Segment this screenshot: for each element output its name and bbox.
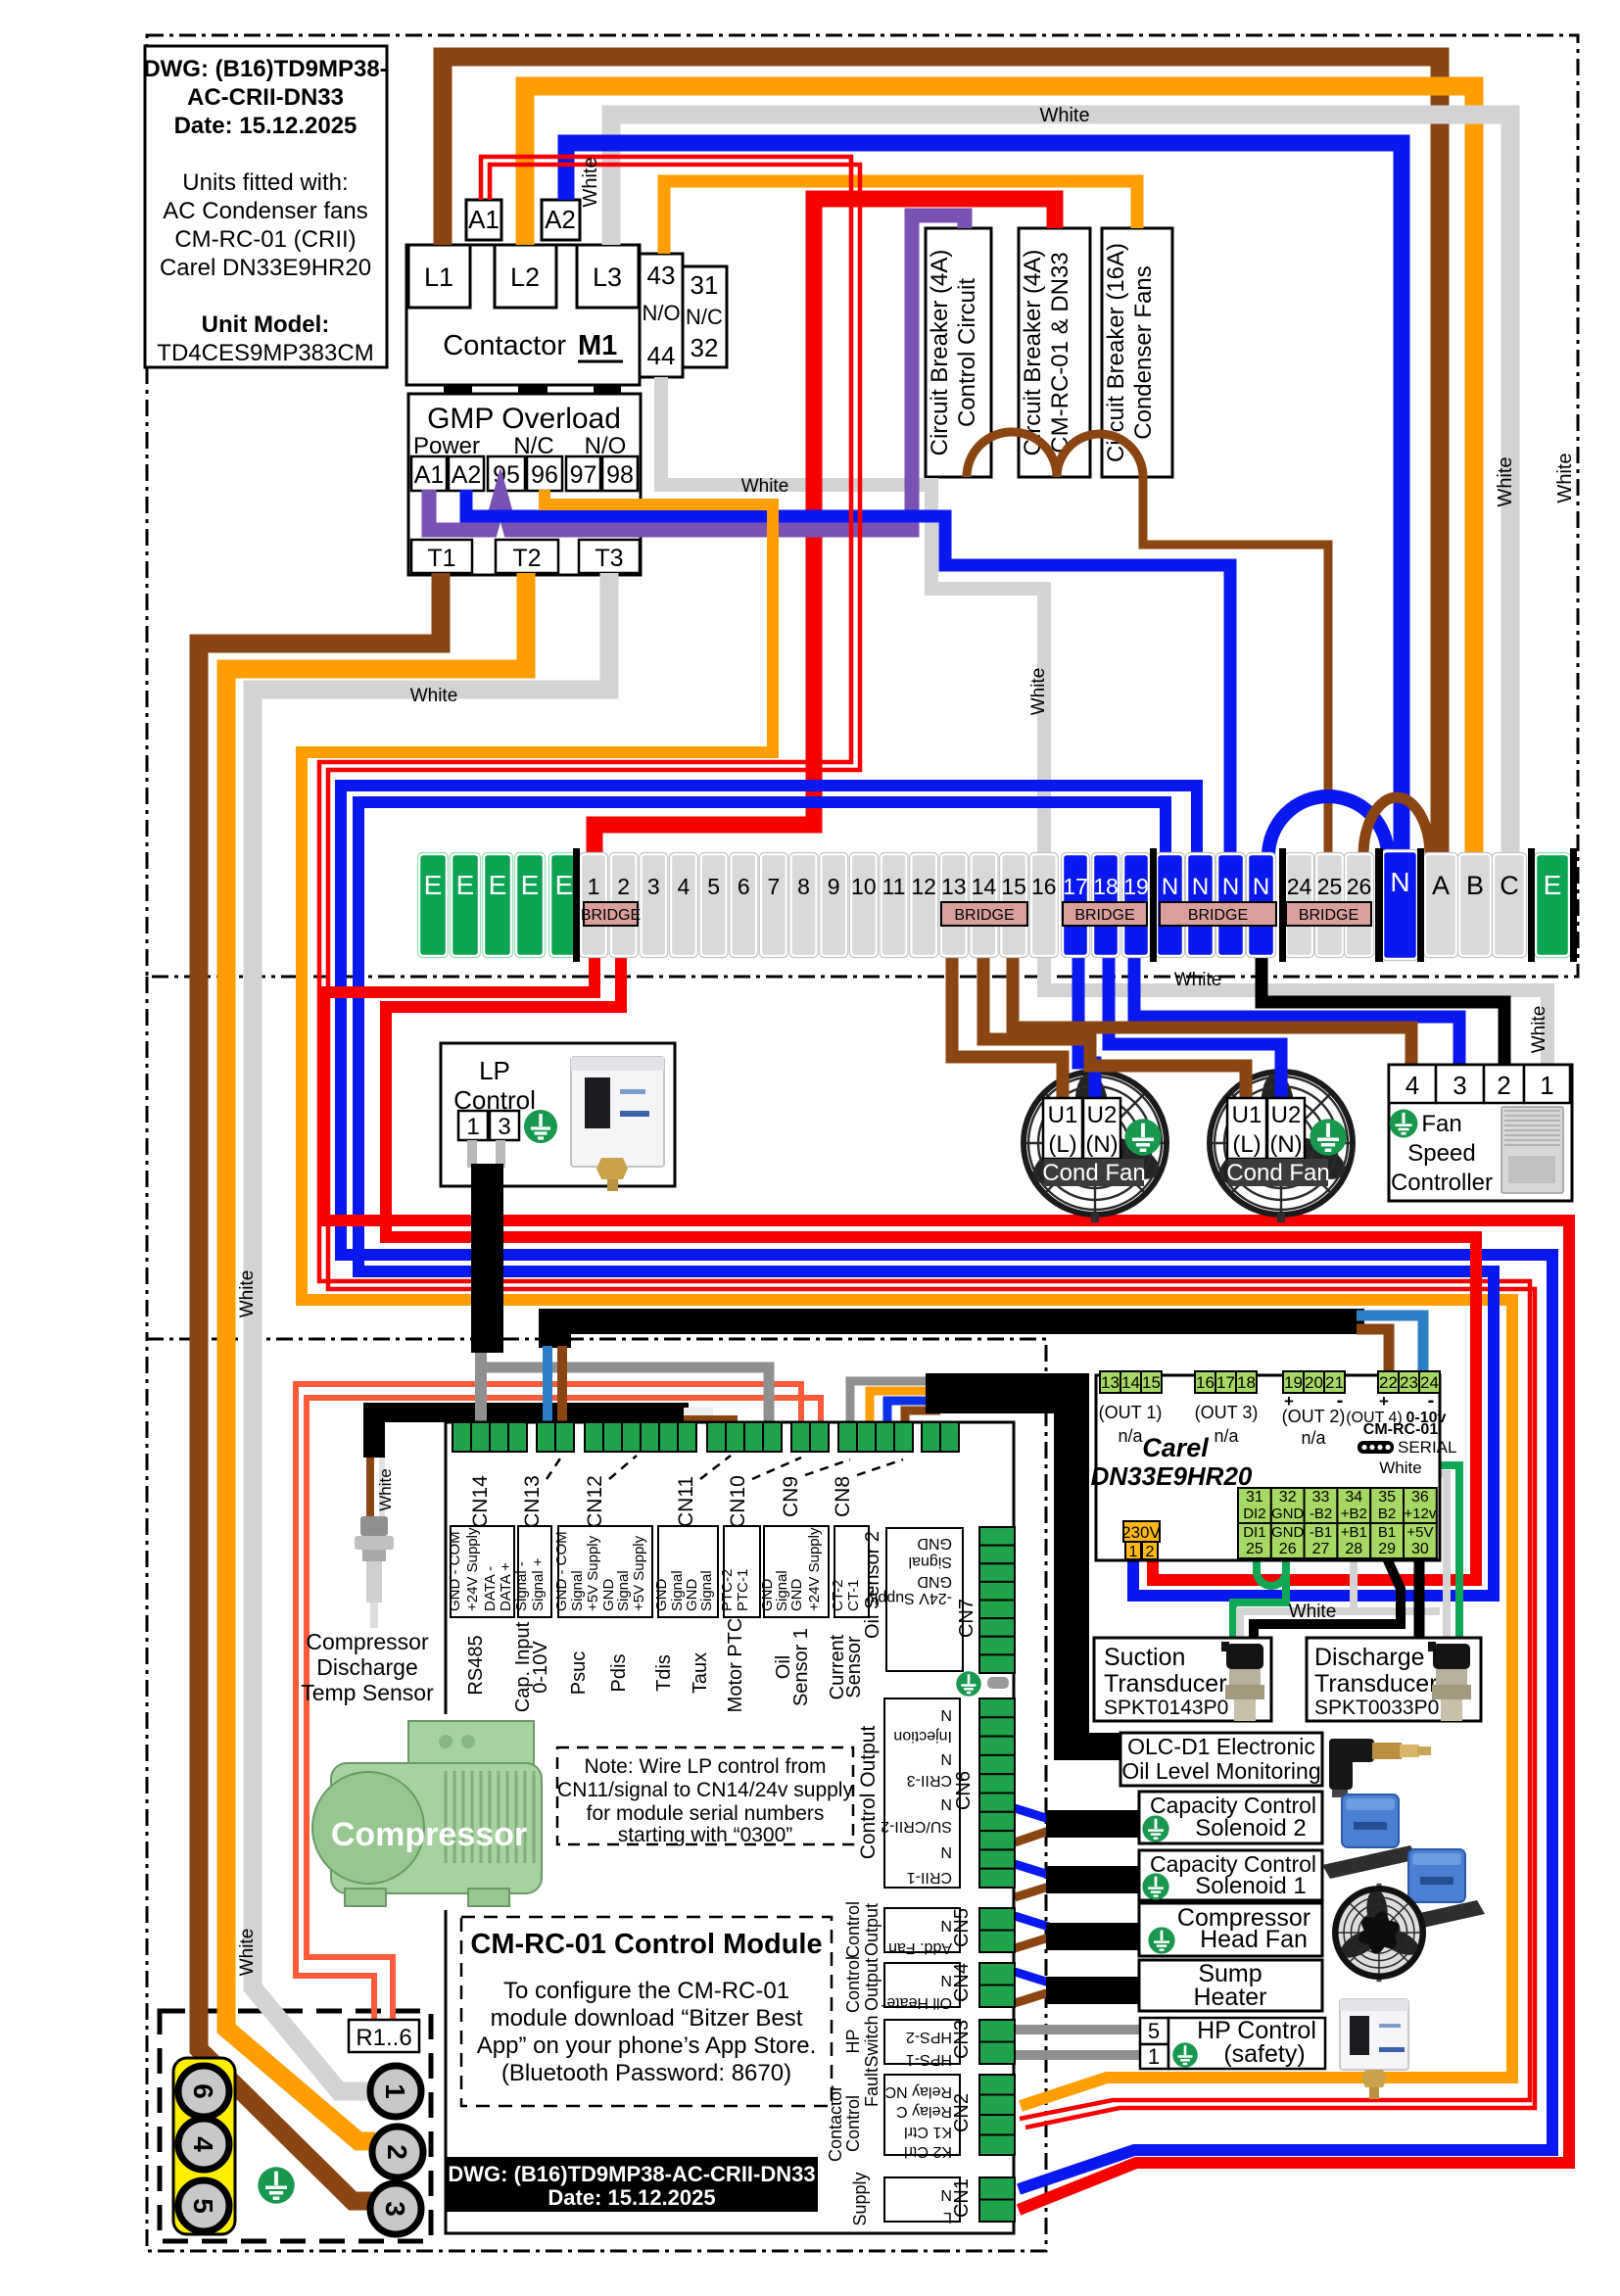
svg-text:DATA +: DATA + bbox=[498, 1562, 514, 1611]
svg-text:2: 2 bbox=[1146, 1544, 1155, 1560]
svg-text:starting with “0300”: starting with “0300” bbox=[618, 1824, 793, 1846]
svg-text:1: 1 bbox=[466, 1114, 479, 1140]
svg-text:K2 Ctrl: K2 Ctrl bbox=[904, 2143, 952, 2160]
svg-text:U1: U1 bbox=[1232, 1102, 1263, 1128]
svg-text:+24V Supply: +24V Supply bbox=[806, 1527, 823, 1611]
svg-text:3: 3 bbox=[498, 1114, 510, 1140]
svg-text:B2: B2 bbox=[1378, 1506, 1396, 1522]
svg-text:96: 96 bbox=[531, 461, 558, 489]
svg-text:E: E bbox=[489, 870, 507, 900]
svg-text:Signal: Signal bbox=[698, 1570, 715, 1611]
svg-text:Signal: Signal bbox=[615, 1570, 632, 1611]
svg-text:Injection: Injection bbox=[893, 1728, 952, 1745]
svg-text:DI2: DI2 bbox=[1243, 1506, 1265, 1522]
svg-text:-B1: -B1 bbox=[1310, 1524, 1332, 1541]
svg-text:1: 1 bbox=[380, 2083, 410, 2099]
svg-text:(safety): (safety) bbox=[1223, 2040, 1305, 2068]
svg-text:Date: 15.12.2025: Date: 15.12.2025 bbox=[174, 113, 357, 139]
svg-text:17: 17 bbox=[1063, 874, 1088, 899]
svg-text:Discharge: Discharge bbox=[1314, 1644, 1425, 1671]
svg-text:Oil Level Monitoring: Oil Level Monitoring bbox=[1121, 1758, 1320, 1784]
svg-text:TD4CES9MP383CM: TD4CES9MP383CM bbox=[157, 340, 373, 366]
svg-text:3: 3 bbox=[647, 874, 660, 899]
svg-text:White: White bbox=[376, 1468, 395, 1510]
svg-text:(Bluetooth Password: 8670): (Bluetooth Password: 8670) bbox=[501, 2060, 791, 2086]
svg-text:CN3: CN3 bbox=[951, 2020, 973, 2059]
svg-text:Switch: Switch bbox=[862, 2015, 881, 2067]
svg-text:(OUT 3): (OUT 3) bbox=[1195, 1403, 1259, 1422]
svg-text:SPKT0033P0: SPKT0033P0 bbox=[1314, 1697, 1439, 1719]
svg-text:HP: HP bbox=[843, 2029, 863, 2053]
svg-text:32: 32 bbox=[691, 333, 719, 362]
svg-text:Fault: Fault bbox=[862, 2068, 881, 2107]
svg-text:Taux: Taux bbox=[690, 1652, 711, 1694]
svg-text:13: 13 bbox=[1101, 1373, 1120, 1392]
svg-text:CT-1: CT-1 bbox=[845, 1579, 862, 1611]
svg-text:Compressor: Compressor bbox=[331, 1816, 527, 1853]
svg-text:6: 6 bbox=[738, 874, 750, 899]
svg-text:R1..6: R1..6 bbox=[356, 2025, 411, 2051]
svg-text:Relay NC: Relay NC bbox=[885, 2083, 952, 2100]
svg-text:HPS-2: HPS-2 bbox=[906, 2029, 952, 2045]
svg-text:Compressor: Compressor bbox=[306, 1629, 429, 1654]
svg-text:AC Condenser fans: AC Condenser fans bbox=[163, 198, 367, 224]
svg-text:CM-RC-01 (CRII): CM-RC-01 (CRII) bbox=[174, 226, 356, 253]
svg-text:15: 15 bbox=[1142, 1373, 1161, 1392]
svg-text:97: 97 bbox=[570, 461, 597, 489]
svg-text:White: White bbox=[1529, 1006, 1549, 1054]
svg-text:M1: M1 bbox=[578, 330, 617, 361]
svg-text:Units fitted with:: Units fitted with: bbox=[182, 169, 348, 196]
svg-text:E: E bbox=[521, 870, 540, 900]
svg-text:Oil Heater: Oil Heater bbox=[881, 1994, 952, 2011]
svg-text:6: 6 bbox=[188, 2083, 218, 2099]
svg-text:Signal: Signal bbox=[569, 1570, 586, 1611]
svg-text:C: C bbox=[1500, 871, 1519, 900]
svg-text:1: 1 bbox=[1129, 1544, 1138, 1560]
svg-text:CN2: CN2 bbox=[951, 2093, 973, 2132]
svg-text:14: 14 bbox=[972, 874, 997, 899]
svg-text:Sensor 1: Sensor 1 bbox=[790, 1628, 812, 1706]
svg-text:25: 25 bbox=[1246, 1541, 1263, 1557]
svg-text:(OUT 1): (OUT 1) bbox=[1099, 1403, 1163, 1422]
svg-text:CN7: CN7 bbox=[956, 1599, 977, 1638]
svg-text:CM-RC-01 Control Module: CM-RC-01 Control Module bbox=[470, 1929, 822, 1960]
svg-text:White: White bbox=[741, 476, 789, 497]
svg-text:N: N bbox=[940, 1843, 952, 1860]
svg-text:Circuit Breaker (4A): Circuit Breaker (4A) bbox=[927, 250, 953, 456]
svg-text:17: 17 bbox=[1216, 1373, 1235, 1392]
svg-text:+5V: +5V bbox=[1406, 1524, 1433, 1541]
svg-text:25: 25 bbox=[1317, 874, 1343, 899]
svg-text:7: 7 bbox=[768, 874, 781, 899]
svg-text:43: 43 bbox=[647, 261, 676, 290]
svg-text:Circuit Breaker (4A): Circuit Breaker (4A) bbox=[1020, 250, 1046, 456]
svg-text:HPS-1: HPS-1 bbox=[906, 2051, 952, 2068]
svg-text:A2: A2 bbox=[545, 205, 576, 234]
svg-text:N: N bbox=[940, 1750, 952, 1767]
svg-text:Unit Model:: Unit Model: bbox=[202, 311, 330, 338]
svg-text:(N): (N) bbox=[1269, 1131, 1302, 1158]
svg-text:Suction: Suction bbox=[1104, 1644, 1185, 1671]
svg-text:BRIDGE: BRIDGE bbox=[1299, 907, 1358, 924]
svg-text:Head Fan: Head Fan bbox=[1200, 1926, 1308, 1953]
svg-text:BRIDGE: BRIDGE bbox=[1074, 907, 1134, 924]
svg-text:98: 98 bbox=[606, 461, 634, 489]
svg-text:33: 33 bbox=[1312, 1489, 1330, 1506]
svg-text:CN12: CN12 bbox=[584, 1475, 606, 1528]
svg-text:Sensor: Sensor bbox=[843, 1636, 865, 1698]
svg-text:Cond Fan: Cond Fan bbox=[1042, 1160, 1145, 1186]
svg-text:Control: Control bbox=[843, 1901, 863, 1958]
svg-text:26: 26 bbox=[1347, 874, 1372, 899]
svg-text:White: White bbox=[580, 157, 601, 207]
svg-text:+5V Supply: +5V Supply bbox=[585, 1535, 601, 1611]
svg-text:1: 1 bbox=[1540, 1071, 1553, 1100]
svg-text:E: E bbox=[424, 870, 443, 900]
svg-text:18: 18 bbox=[1237, 1373, 1256, 1392]
svg-text:Output: Output bbox=[862, 1958, 881, 2011]
svg-text:+B1: +B1 bbox=[1341, 1524, 1367, 1541]
svg-text:CN8: CN8 bbox=[832, 1476, 854, 1517]
svg-text:+B2: +B2 bbox=[1341, 1506, 1367, 1522]
svg-text:Pdis: Pdis bbox=[608, 1654, 630, 1693]
svg-text:Carel: Carel bbox=[1142, 1433, 1209, 1462]
svg-text:OLC-D1 Electronic: OLC-D1 Electronic bbox=[1127, 1734, 1315, 1759]
svg-text:CT-2: CT-2 bbox=[830, 1579, 846, 1611]
svg-text:RS485: RS485 bbox=[465, 1635, 487, 1695]
svg-text:31: 31 bbox=[691, 270, 719, 300]
svg-text:Discharge: Discharge bbox=[316, 1654, 418, 1680]
svg-text:-: - bbox=[1428, 1390, 1435, 1411]
svg-text:(N): (N) bbox=[1085, 1131, 1118, 1158]
svg-text:32: 32 bbox=[1279, 1489, 1297, 1506]
svg-text:Control: Control bbox=[843, 2095, 863, 2152]
svg-text:BRIDGE: BRIDGE bbox=[954, 907, 1014, 924]
svg-text:CN13: CN13 bbox=[521, 1475, 544, 1528]
svg-text:N: N bbox=[1222, 874, 1239, 900]
svg-text:GND: GND bbox=[788, 1579, 805, 1612]
svg-text:for module serial numbers: for module serial numbers bbox=[587, 1802, 825, 1825]
svg-text:10: 10 bbox=[851, 874, 877, 899]
svg-text:CN1: CN1 bbox=[951, 2178, 973, 2218]
svg-text:Signal +: Signal + bbox=[530, 1557, 547, 1611]
svg-text:4: 4 bbox=[188, 2136, 218, 2152]
svg-text:GND - COM: GND - COM bbox=[447, 1531, 463, 1611]
svg-text:A1: A1 bbox=[468, 205, 500, 234]
svg-text:U2: U2 bbox=[1271, 1102, 1302, 1128]
svg-text:T3: T3 bbox=[595, 545, 623, 572]
svg-text:26: 26 bbox=[1279, 1541, 1297, 1557]
svg-text:BRIDGE: BRIDGE bbox=[1188, 907, 1248, 924]
svg-text:N/C: N/C bbox=[686, 305, 723, 329]
svg-text:Control: Control bbox=[843, 1956, 863, 2013]
svg-text:N: N bbox=[1253, 874, 1269, 900]
svg-text:PTC-2: PTC-2 bbox=[719, 1569, 736, 1611]
svg-text:Heater: Heater bbox=[1193, 1984, 1266, 2011]
svg-text:Control Output: Control Output bbox=[857, 1726, 880, 1860]
svg-text:DWG: (B16)TD9MP38-AC-CRII-DN33: DWG: (B16)TD9MP38-AC-CRII-DN33 bbox=[448, 2162, 815, 2186]
svg-text:18: 18 bbox=[1093, 874, 1119, 899]
svg-text:n/a: n/a bbox=[1118, 1426, 1143, 1446]
svg-text:White: White bbox=[1039, 105, 1089, 126]
svg-text:-24V Supply: -24V Supply bbox=[867, 1590, 952, 1606]
svg-text:n/a: n/a bbox=[1214, 1426, 1239, 1446]
svg-text:(OUT 2): (OUT 2) bbox=[1282, 1407, 1346, 1426]
svg-text:DWG: (B16)TD9MP38-: DWG: (B16)TD9MP38- bbox=[143, 56, 387, 82]
svg-text:19: 19 bbox=[1284, 1373, 1303, 1392]
svg-text:CN4: CN4 bbox=[951, 1963, 973, 2002]
svg-text:Date: 15.12.2025: Date: 15.12.2025 bbox=[548, 2185, 715, 2210]
svg-text:White: White bbox=[410, 686, 458, 706]
svg-text:E: E bbox=[555, 870, 574, 900]
svg-text:White: White bbox=[237, 1929, 258, 1977]
svg-text:N: N bbox=[1390, 867, 1409, 897]
svg-text:2: 2 bbox=[1497, 1071, 1510, 1100]
svg-text:13: 13 bbox=[941, 874, 967, 899]
svg-text:(L): (L) bbox=[1232, 1131, 1261, 1158]
svg-text:8: 8 bbox=[797, 874, 810, 899]
svg-text:24: 24 bbox=[1287, 874, 1312, 899]
svg-text:App” on your phone’s App Store: App” on your phone’s App Store. bbox=[477, 2033, 816, 2059]
svg-text:11: 11 bbox=[882, 874, 906, 899]
svg-text:L3: L3 bbox=[593, 263, 622, 292]
svg-text:To configure the CM-RC-01: To configure the CM-RC-01 bbox=[503, 1978, 789, 2004]
svg-text:White: White bbox=[1379, 1459, 1421, 1477]
svg-text:SU/CRII-2: SU/CRII-2 bbox=[881, 1818, 952, 1835]
svg-text:N: N bbox=[940, 1706, 952, 1723]
svg-text:N: N bbox=[1162, 874, 1178, 900]
svg-text:N/O: N/O bbox=[642, 301, 680, 325]
svg-text:30: 30 bbox=[1411, 1541, 1429, 1557]
svg-text:N: N bbox=[940, 1795, 952, 1812]
svg-text:CRII-1: CRII-1 bbox=[907, 1869, 952, 1886]
svg-text:CN10: CN10 bbox=[727, 1475, 749, 1528]
svg-text:Tdis: Tdis bbox=[653, 1654, 675, 1692]
svg-text:1: 1 bbox=[588, 874, 600, 899]
svg-text:Add. Fan: Add. Fan bbox=[888, 1939, 952, 1956]
svg-text:5: 5 bbox=[1148, 2019, 1160, 2043]
svg-text:5: 5 bbox=[188, 2198, 218, 2214]
svg-text:B1: B1 bbox=[1378, 1524, 1396, 1541]
svg-text:5: 5 bbox=[707, 874, 720, 899]
svg-text:Output: Output bbox=[862, 1903, 881, 1956]
svg-text:Control Circuit: Control Circuit bbox=[954, 278, 980, 427]
svg-text:CN5: CN5 bbox=[951, 1908, 973, 1947]
svg-text:AC-CRII-DN33: AC-CRII-DN33 bbox=[187, 84, 344, 111]
svg-text:White: White bbox=[237, 1270, 258, 1318]
svg-text:0-10V: 0-10V bbox=[530, 1641, 551, 1694]
svg-text:-B2: -B2 bbox=[1310, 1506, 1332, 1522]
svg-text:19: 19 bbox=[1123, 874, 1149, 899]
svg-text:T2: T2 bbox=[512, 545, 541, 572]
svg-text:+: + bbox=[1379, 1392, 1389, 1411]
svg-text:CM-RC-01 & DN33: CM-RC-01 & DN33 bbox=[1047, 252, 1073, 453]
svg-text:Psuc: Psuc bbox=[568, 1651, 590, 1695]
svg-text:+12v: +12v bbox=[1404, 1506, 1436, 1522]
svg-text:White: White bbox=[1174, 970, 1222, 990]
svg-text:DI1: DI1 bbox=[1243, 1524, 1265, 1541]
svg-text:16: 16 bbox=[1031, 874, 1057, 899]
svg-text:BRIDGE: BRIDGE bbox=[581, 907, 641, 924]
svg-text:module download “Bitzer Best: module download “Bitzer Best bbox=[491, 2005, 803, 2032]
svg-text:35: 35 bbox=[1378, 1489, 1396, 1506]
svg-text:16: 16 bbox=[1196, 1373, 1215, 1392]
svg-text:E: E bbox=[1544, 870, 1562, 900]
svg-text:1: 1 bbox=[1148, 2044, 1160, 2069]
svg-text:GMP Overload: GMP Overload bbox=[427, 403, 621, 435]
svg-text:CM-RC-01: CM-RC-01 bbox=[1363, 1421, 1439, 1438]
svg-text:12: 12 bbox=[911, 874, 936, 899]
svg-text:Relay C: Relay C bbox=[896, 2103, 952, 2120]
svg-text:44: 44 bbox=[647, 341, 676, 370]
svg-text:N: N bbox=[1192, 874, 1209, 900]
svg-text:B: B bbox=[1466, 871, 1484, 900]
svg-text:Speed: Speed bbox=[1407, 1140, 1475, 1167]
svg-text:CN14: CN14 bbox=[469, 1475, 492, 1528]
svg-text:4: 4 bbox=[1406, 1071, 1419, 1100]
svg-text:Cond Fan: Cond Fan bbox=[1226, 1160, 1329, 1186]
svg-text:15: 15 bbox=[1001, 874, 1026, 899]
svg-text:Motor PTC: Motor PTC bbox=[725, 1618, 746, 1713]
svg-text:Note: Wire LP control from: Note: Wire LP control from bbox=[584, 1755, 826, 1778]
svg-text:L2: L2 bbox=[510, 263, 540, 292]
svg-text:22: 22 bbox=[1379, 1373, 1398, 1392]
svg-text:Transducer: Transducer bbox=[1314, 1670, 1438, 1698]
svg-text:2: 2 bbox=[382, 2144, 412, 2160]
svg-text:n/a: n/a bbox=[1301, 1428, 1326, 1448]
svg-text:9: 9 bbox=[828, 874, 840, 899]
svg-text:23: 23 bbox=[1400, 1373, 1418, 1392]
svg-text:(L): (L) bbox=[1048, 1131, 1076, 1158]
svg-text:GND - COM: GND - COM bbox=[553, 1531, 570, 1611]
svg-text:2: 2 bbox=[617, 874, 630, 899]
svg-text:Circuit Breaker (16A): Circuit Breaker (16A) bbox=[1103, 243, 1129, 462]
svg-text:CN9: CN9 bbox=[780, 1476, 802, 1517]
svg-text:Signal -: Signal - bbox=[513, 1561, 530, 1611]
svg-text:+24V Supply: +24V Supply bbox=[464, 1527, 481, 1611]
svg-text:Fan: Fan bbox=[1421, 1111, 1461, 1137]
svg-text:Contactor: Contactor bbox=[443, 330, 566, 361]
svg-text:A2: A2 bbox=[452, 461, 482, 489]
svg-text:CN6: CN6 bbox=[953, 1771, 975, 1810]
svg-text:3: 3 bbox=[380, 2201, 410, 2217]
svg-text:A: A bbox=[1432, 871, 1450, 900]
svg-text:A1: A1 bbox=[414, 461, 445, 489]
svg-text:28: 28 bbox=[1345, 1541, 1362, 1557]
svg-text:GND: GND bbox=[1271, 1506, 1305, 1522]
svg-text:20: 20 bbox=[1305, 1373, 1323, 1392]
svg-text:U1: U1 bbox=[1048, 1102, 1078, 1128]
svg-text:36: 36 bbox=[1411, 1489, 1429, 1506]
svg-text:LP: LP bbox=[479, 1056, 510, 1085]
svg-text:+5V Supply: +5V Supply bbox=[631, 1535, 647, 1611]
svg-text:Oil Sensor 2: Oil Sensor 2 bbox=[862, 1531, 883, 1639]
svg-text:4: 4 bbox=[678, 874, 691, 899]
svg-text:34: 34 bbox=[1345, 1489, 1362, 1506]
svg-text:29: 29 bbox=[1378, 1541, 1396, 1557]
svg-text:14: 14 bbox=[1121, 1373, 1140, 1392]
svg-text:Solenoid 2: Solenoid 2 bbox=[1195, 1815, 1306, 1842]
svg-text:GND: GND bbox=[1271, 1524, 1305, 1541]
svg-text:31: 31 bbox=[1246, 1489, 1263, 1506]
svg-text:U2: U2 bbox=[1087, 1102, 1118, 1128]
svg-text:Condenser Fans: Condenser Fans bbox=[1130, 265, 1157, 439]
svg-text:Solenoid 1: Solenoid 1 bbox=[1195, 1873, 1306, 1899]
svg-text:DATA -: DATA - bbox=[482, 1566, 499, 1611]
svg-text:SPKT0143P0: SPKT0143P0 bbox=[1104, 1697, 1228, 1719]
svg-text:White: White bbox=[1289, 1602, 1337, 1622]
svg-text:Temp Sensor: Temp Sensor bbox=[301, 1680, 434, 1705]
svg-text:K1 Ctrl: K1 Ctrl bbox=[904, 2124, 952, 2140]
svg-text:Controller: Controller bbox=[1391, 1170, 1493, 1196]
svg-text:SERIAL: SERIAL bbox=[1398, 1438, 1456, 1457]
svg-text:L1: L1 bbox=[424, 263, 453, 292]
svg-text:230V: 230V bbox=[1121, 1523, 1161, 1542]
svg-text:CN11: CN11 bbox=[675, 1476, 697, 1527]
svg-text:3: 3 bbox=[1453, 1071, 1466, 1100]
svg-text:GND: GND bbox=[917, 1573, 952, 1590]
svg-text:White: White bbox=[1554, 453, 1576, 502]
svg-text:White: White bbox=[1028, 668, 1049, 716]
svg-text:CRII-3: CRII-3 bbox=[907, 1772, 952, 1789]
svg-text:Signal: Signal bbox=[909, 1554, 952, 1570]
svg-text:GND: GND bbox=[653, 1579, 670, 1612]
svg-text:DN33E9HR20: DN33E9HR20 bbox=[1091, 1461, 1253, 1491]
svg-text:Supply: Supply bbox=[850, 2172, 870, 2225]
svg-text:27: 27 bbox=[1312, 1541, 1330, 1557]
svg-text:White: White bbox=[1495, 456, 1516, 506]
svg-text:Transducer: Transducer bbox=[1104, 1670, 1227, 1698]
svg-text:T1: T1 bbox=[427, 545, 455, 572]
svg-text:E: E bbox=[456, 870, 475, 900]
svg-text:Carel DN33E9HR20: Carel DN33E9HR20 bbox=[160, 255, 371, 281]
svg-text:GND: GND bbox=[917, 1535, 952, 1552]
svg-text:PTC-1: PTC-1 bbox=[735, 1569, 751, 1611]
svg-text:CN11/signal to CN14/24v supply: CN11/signal to CN14/24v supply bbox=[557, 1779, 853, 1801]
